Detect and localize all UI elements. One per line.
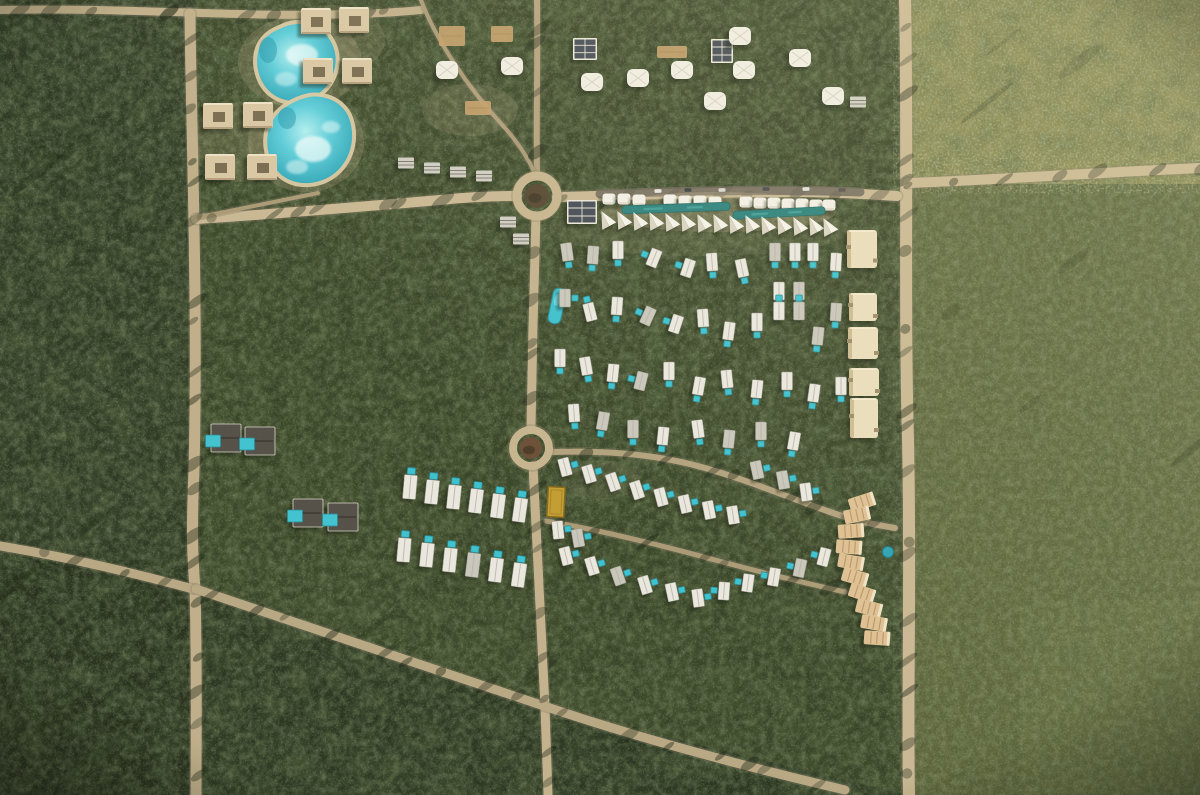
aerial-master-plan-image: [0, 0, 1200, 795]
aerial-view-canvas: [0, 0, 1200, 795]
vignette: [0, 0, 1200, 795]
